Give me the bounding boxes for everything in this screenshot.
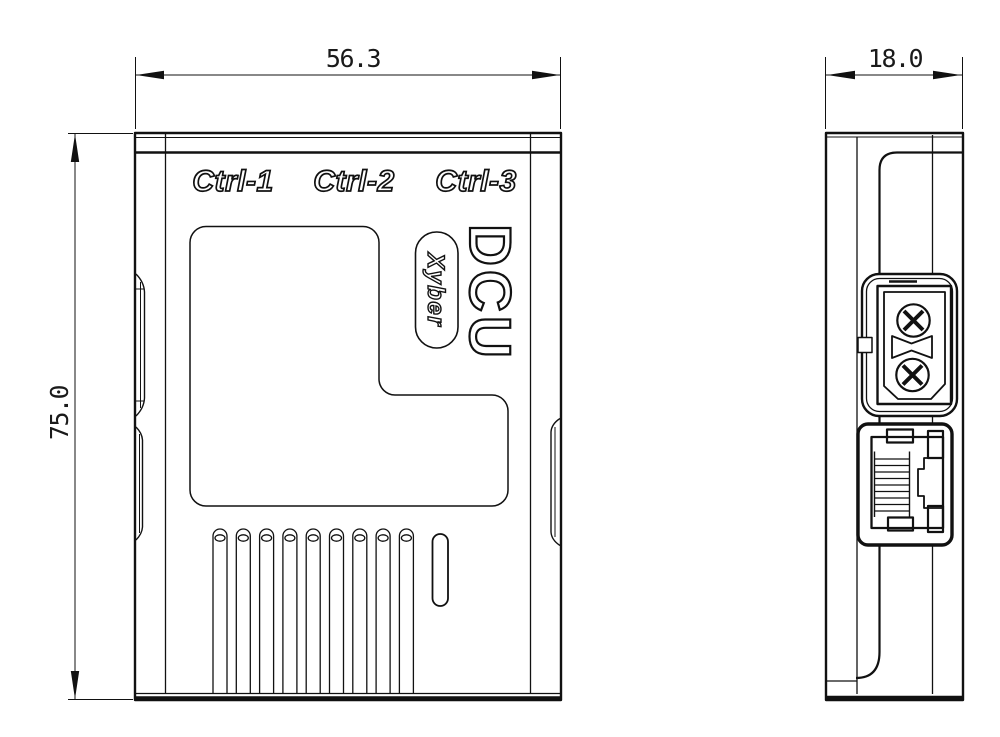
vent-slot xyxy=(213,529,227,694)
ethernet-port xyxy=(858,424,952,545)
dimension-value: 56.3 xyxy=(326,44,381,73)
side-view xyxy=(826,133,963,700)
arrowhead-bottom xyxy=(71,671,79,699)
ethernet-socket xyxy=(872,437,944,528)
vent-slot xyxy=(260,529,274,694)
port-label-ctrl-1: Ctrl-1 xyxy=(192,165,273,198)
vent-slots xyxy=(213,529,413,694)
vent-slot xyxy=(330,529,344,694)
left-rail-clips xyxy=(136,274,145,540)
power-connector-side-tab xyxy=(858,338,872,353)
front-outline xyxy=(135,133,561,700)
port-label-ctrl-2: Ctrl-2 xyxy=(313,165,394,198)
dimension-front-width: 56.3 xyxy=(136,44,561,129)
right-rail-clip xyxy=(551,419,560,546)
vent-slot xyxy=(376,529,390,694)
arrowhead-top xyxy=(71,134,79,162)
xyber-badge: Xyber xyxy=(416,232,459,348)
extension-lines xyxy=(68,134,133,700)
dcu-logo: DCU xyxy=(457,224,522,362)
oval-slot xyxy=(433,534,449,606)
front-view: Ctrl-1 Ctrl-2 Ctrl-3 DCU Xyber xyxy=(135,133,561,700)
rail-clip-upper-detail xyxy=(136,282,144,408)
port-label-ctrl-3: Ctrl-3 xyxy=(435,165,516,198)
dimension-front-height: 75.0 xyxy=(45,134,133,700)
arrowhead-left xyxy=(827,71,855,79)
dimension-value: 18.0 xyxy=(868,44,923,73)
dimension-value: 75.0 xyxy=(45,385,74,440)
drawing-sheet: Ctrl-1 Ctrl-2 Ctrl-3 DCU Xyber xyxy=(0,0,1000,737)
xyber-badge-label: Xyber xyxy=(422,251,449,327)
technical-drawing-canvas: Ctrl-1 Ctrl-2 Ctrl-3 DCU Xyber xyxy=(0,0,1000,737)
arrowhead-right xyxy=(532,71,560,79)
arrowhead-left xyxy=(136,71,164,79)
power-connector xyxy=(858,274,957,416)
vent-slot xyxy=(283,529,297,694)
vent-slot xyxy=(353,529,367,694)
vent-slot xyxy=(236,529,250,694)
vent-slot xyxy=(399,529,413,694)
vent-slot xyxy=(306,529,320,694)
arrowhead-right xyxy=(933,71,961,79)
dimension-side-depth: 18.0 xyxy=(826,44,963,129)
